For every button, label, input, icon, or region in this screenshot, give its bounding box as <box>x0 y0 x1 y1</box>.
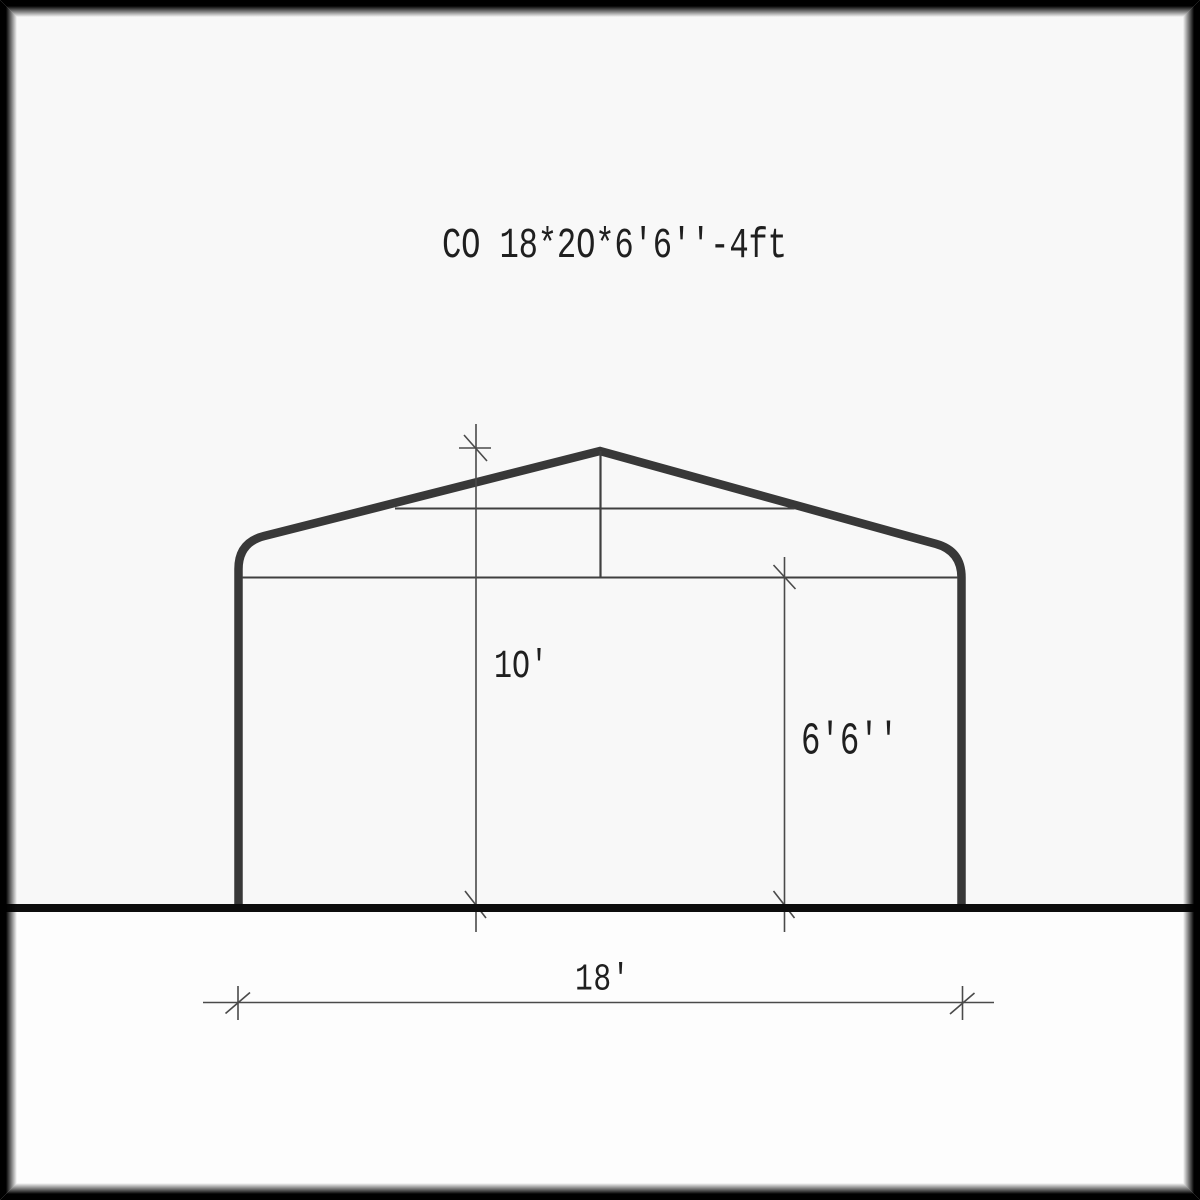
svg-text:1O': 1O' <box>494 644 548 689</box>
svg-text:18': 18' <box>575 959 630 1001</box>
svg-text:6'6'': 6'6'' <box>801 716 898 768</box>
svg-text:CO 18*2O*6'6''-4ft: CO 18*2O*6'6''-4ft <box>442 222 787 271</box>
